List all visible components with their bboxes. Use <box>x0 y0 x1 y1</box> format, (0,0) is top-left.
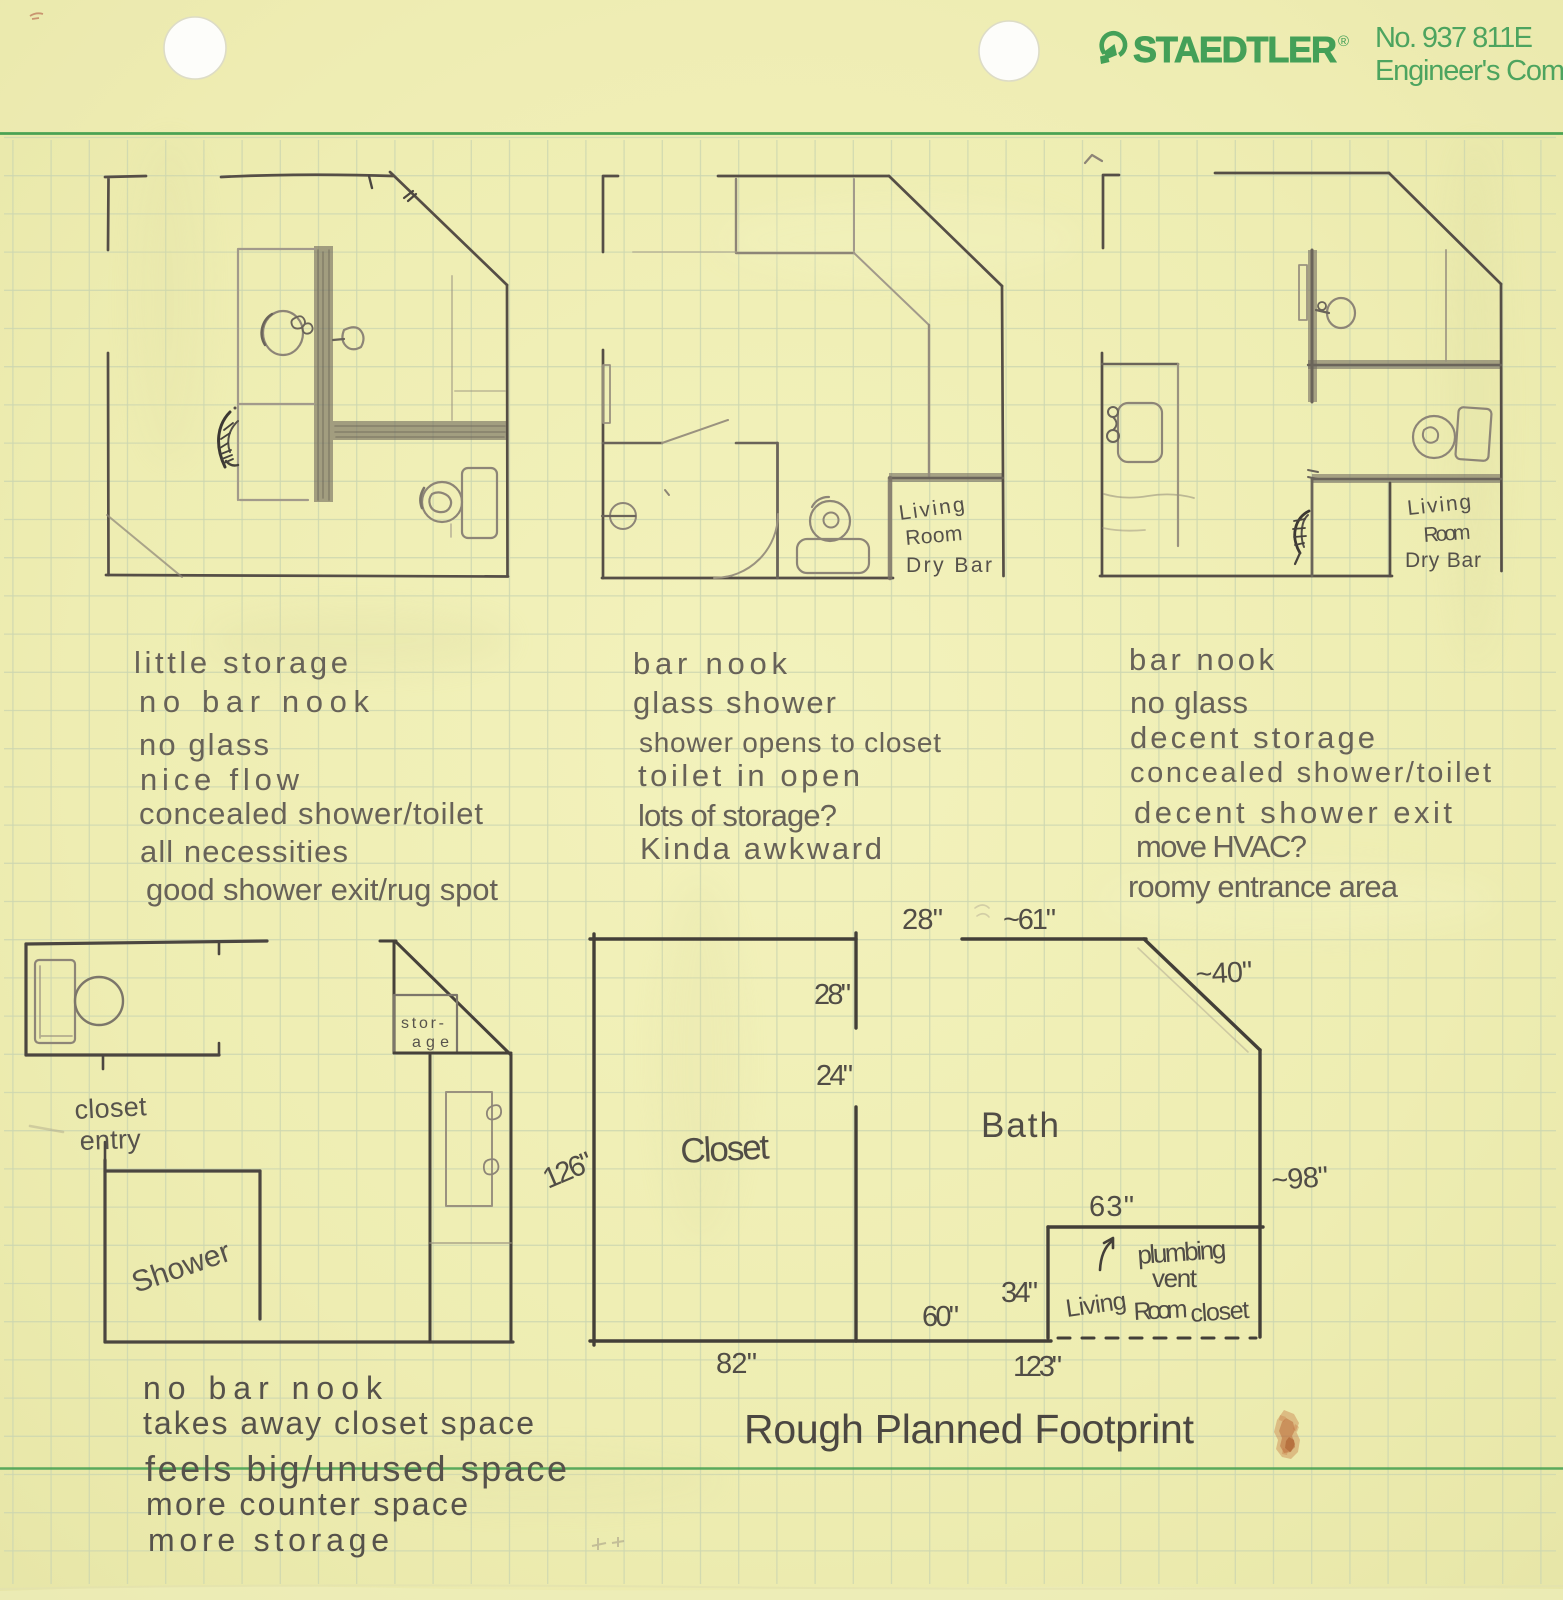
svg-text:no bar nook: no bar nook <box>143 1370 383 1406</box>
svg-text:concealed shower/toilet: concealed shower/toilet <box>139 796 484 831</box>
svg-text:roomy entrance area: roomy entrance area <box>1128 869 1399 904</box>
svg-text:takes away closet space: takes away closet space <box>143 1405 535 1441</box>
svg-text:more storage: more storage <box>148 1522 390 1558</box>
svg-text:age: age <box>412 1034 449 1051</box>
svg-text:feels big/unused space: feels big/unused space <box>145 1448 568 1489</box>
svg-text:lots of storage?: lots of storage? <box>638 798 838 833</box>
svg-text:24": 24" <box>816 1060 854 1092</box>
svg-text:no bar nook: no bar nook <box>139 684 370 719</box>
svg-text:Room: Room <box>1423 521 1471 547</box>
svg-text:No. 937 811E: No. 937 811E <box>1375 22 1533 54</box>
svg-text:move HVAC?: move HVAC? <box>1136 829 1308 864</box>
svg-text:~98": ~98" <box>1270 1161 1330 1197</box>
svg-text:glass shower: glass shower <box>633 685 837 720</box>
svg-text:Engineer's Com: Engineer's Com <box>1375 55 1563 87</box>
svg-text:concealed shower/toilet: concealed shower/toilet <box>1130 757 1492 789</box>
svg-text:28": 28" <box>814 979 852 1011</box>
svg-text:Kinda awkward: Kinda awkward <box>640 831 883 866</box>
svg-text:28": 28" <box>902 904 944 936</box>
svg-text:no glass: no glass <box>1130 685 1249 720</box>
svg-text:82": 82" <box>716 1348 758 1380</box>
svg-text:decent storage: decent storage <box>1130 720 1376 755</box>
svg-text:~40": ~40" <box>1195 956 1255 991</box>
svg-text:entry: entry <box>79 1124 142 1156</box>
svg-text:60": 60" <box>922 1301 960 1333</box>
svg-text:63": 63" <box>1089 1191 1135 1223</box>
svg-text:Dry Bar: Dry Bar <box>906 554 992 577</box>
svg-text:STAEDTLER: STAEDTLER <box>1133 29 1338 70</box>
svg-text:®: ® <box>1338 33 1349 50</box>
svg-text:little storage: little storage <box>134 645 349 680</box>
svg-text:no glass: no glass <box>139 727 270 762</box>
svg-text:shower opens to closet: shower opens to closet <box>639 727 942 758</box>
svg-text:Closet: Closet <box>679 1127 771 1171</box>
svg-text:closet: closet <box>1189 1296 1251 1328</box>
svg-text:Bath: Bath <box>981 1106 1060 1145</box>
svg-text:vent: vent <box>1152 1263 1198 1293</box>
svg-text:123": 123" <box>1013 1351 1063 1383</box>
svg-text:decent shower exit: decent shower exit <box>1134 795 1453 830</box>
svg-text:nice flow: nice flow <box>140 762 300 797</box>
svg-text:34": 34" <box>1001 1277 1039 1309</box>
svg-text:Rough Planned Footprint: Rough Planned Footprint <box>744 1406 1196 1452</box>
svg-text:all necessities: all necessities <box>140 834 349 869</box>
svg-text:Room: Room <box>1133 1295 1189 1326</box>
svg-text:toilet in open: toilet in open <box>638 758 861 793</box>
svg-text:closet: closet <box>74 1091 148 1125</box>
svg-text:good shower exit/rug spot: good shower exit/rug spot <box>146 872 499 907</box>
svg-text:bar nook: bar nook <box>633 646 788 681</box>
svg-text:more counter space: more counter space <box>146 1486 469 1522</box>
svg-text:Dry Bar: Dry Bar <box>1405 549 1481 572</box>
svg-text:~61": ~61" <box>1003 904 1057 936</box>
svg-text:bar nook: bar nook <box>1129 642 1275 677</box>
